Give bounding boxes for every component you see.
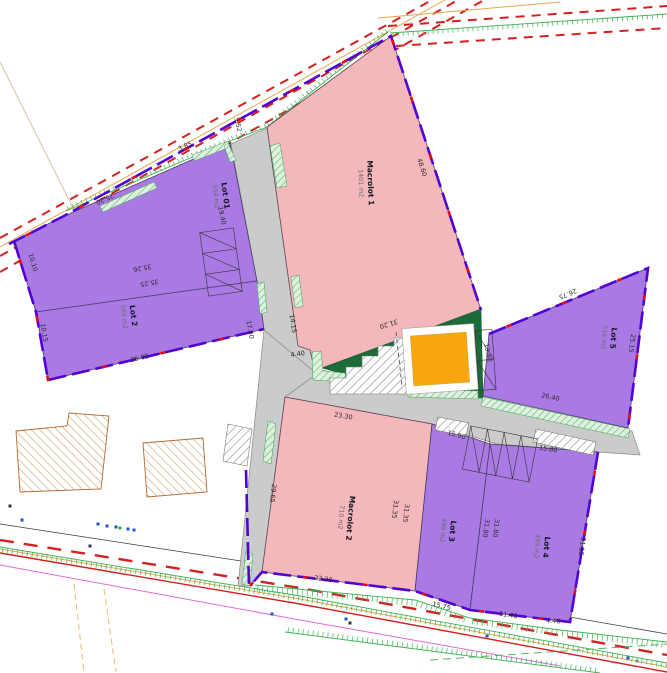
- dimension-label: 5.52: [233, 117, 244, 133]
- building-2: [143, 438, 207, 497]
- site-plan-canvas: 25.205.523.8519.4048.6010.1010.1535.2635…: [0, 0, 667, 673]
- dimension-label: 3.85: [177, 140, 194, 153]
- dimension-label: 4.40: [546, 616, 561, 625]
- dimension-label: 23.30: [314, 574, 334, 585]
- utility-pad: [402, 324, 478, 395]
- transformer-pad: [410, 332, 469, 386]
- site-plan: 25.205.523.8519.4048.6010.1010.1535.2635…: [0, 0, 667, 673]
- dimension-label: 11.40: [498, 610, 518, 621]
- lot-macrolot2: [262, 397, 432, 591]
- building-1: [16, 413, 109, 492]
- lots: [14, 36, 648, 622]
- existing-buildings: [16, 413, 207, 497]
